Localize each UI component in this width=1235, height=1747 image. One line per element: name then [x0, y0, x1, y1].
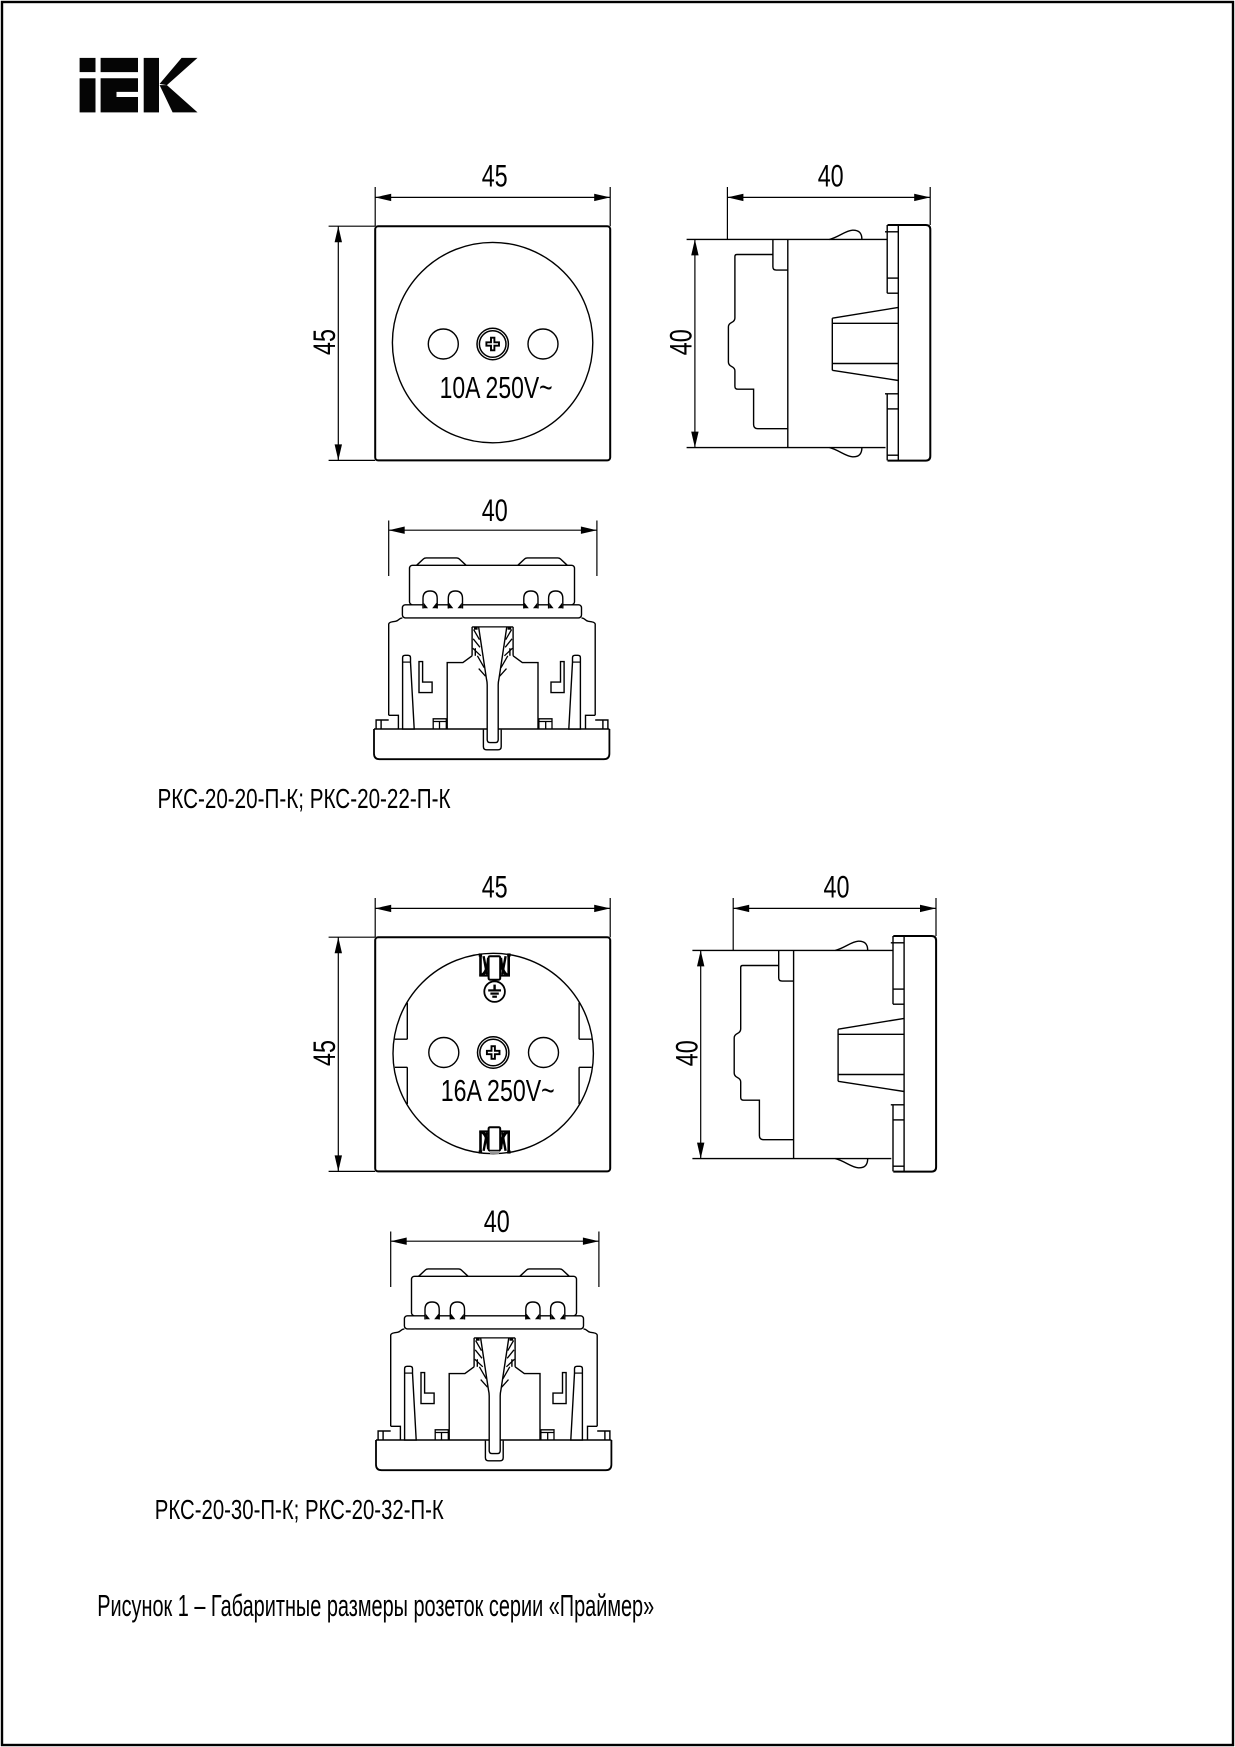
- svg-text:40: 40: [663, 329, 699, 355]
- svg-text:РКС-20-30-П-К; РКС-20-32-П-К: РКС-20-30-П-К; РКС-20-32-П-К: [155, 1494, 444, 1525]
- svg-text:40: 40: [818, 158, 844, 194]
- svg-text:10A 250V~: 10A 250V~: [440, 370, 553, 405]
- svg-text:45: 45: [306, 329, 342, 355]
- svg-text:45: 45: [482, 869, 508, 905]
- svg-text:Рисунок 1 – Габаритные размеры: Рисунок 1 – Габаритные размеры розеток с…: [97, 1588, 654, 1623]
- svg-text:РКС-20-20-П-К; РКС-20-22-П-К: РКС-20-20-П-К; РКС-20-22-П-К: [158, 783, 452, 814]
- svg-text:40: 40: [482, 492, 508, 528]
- svg-text:16A 250V~: 16A 250V~: [441, 1073, 555, 1108]
- svg-text:45: 45: [306, 1040, 342, 1066]
- svg-text:45: 45: [482, 158, 508, 194]
